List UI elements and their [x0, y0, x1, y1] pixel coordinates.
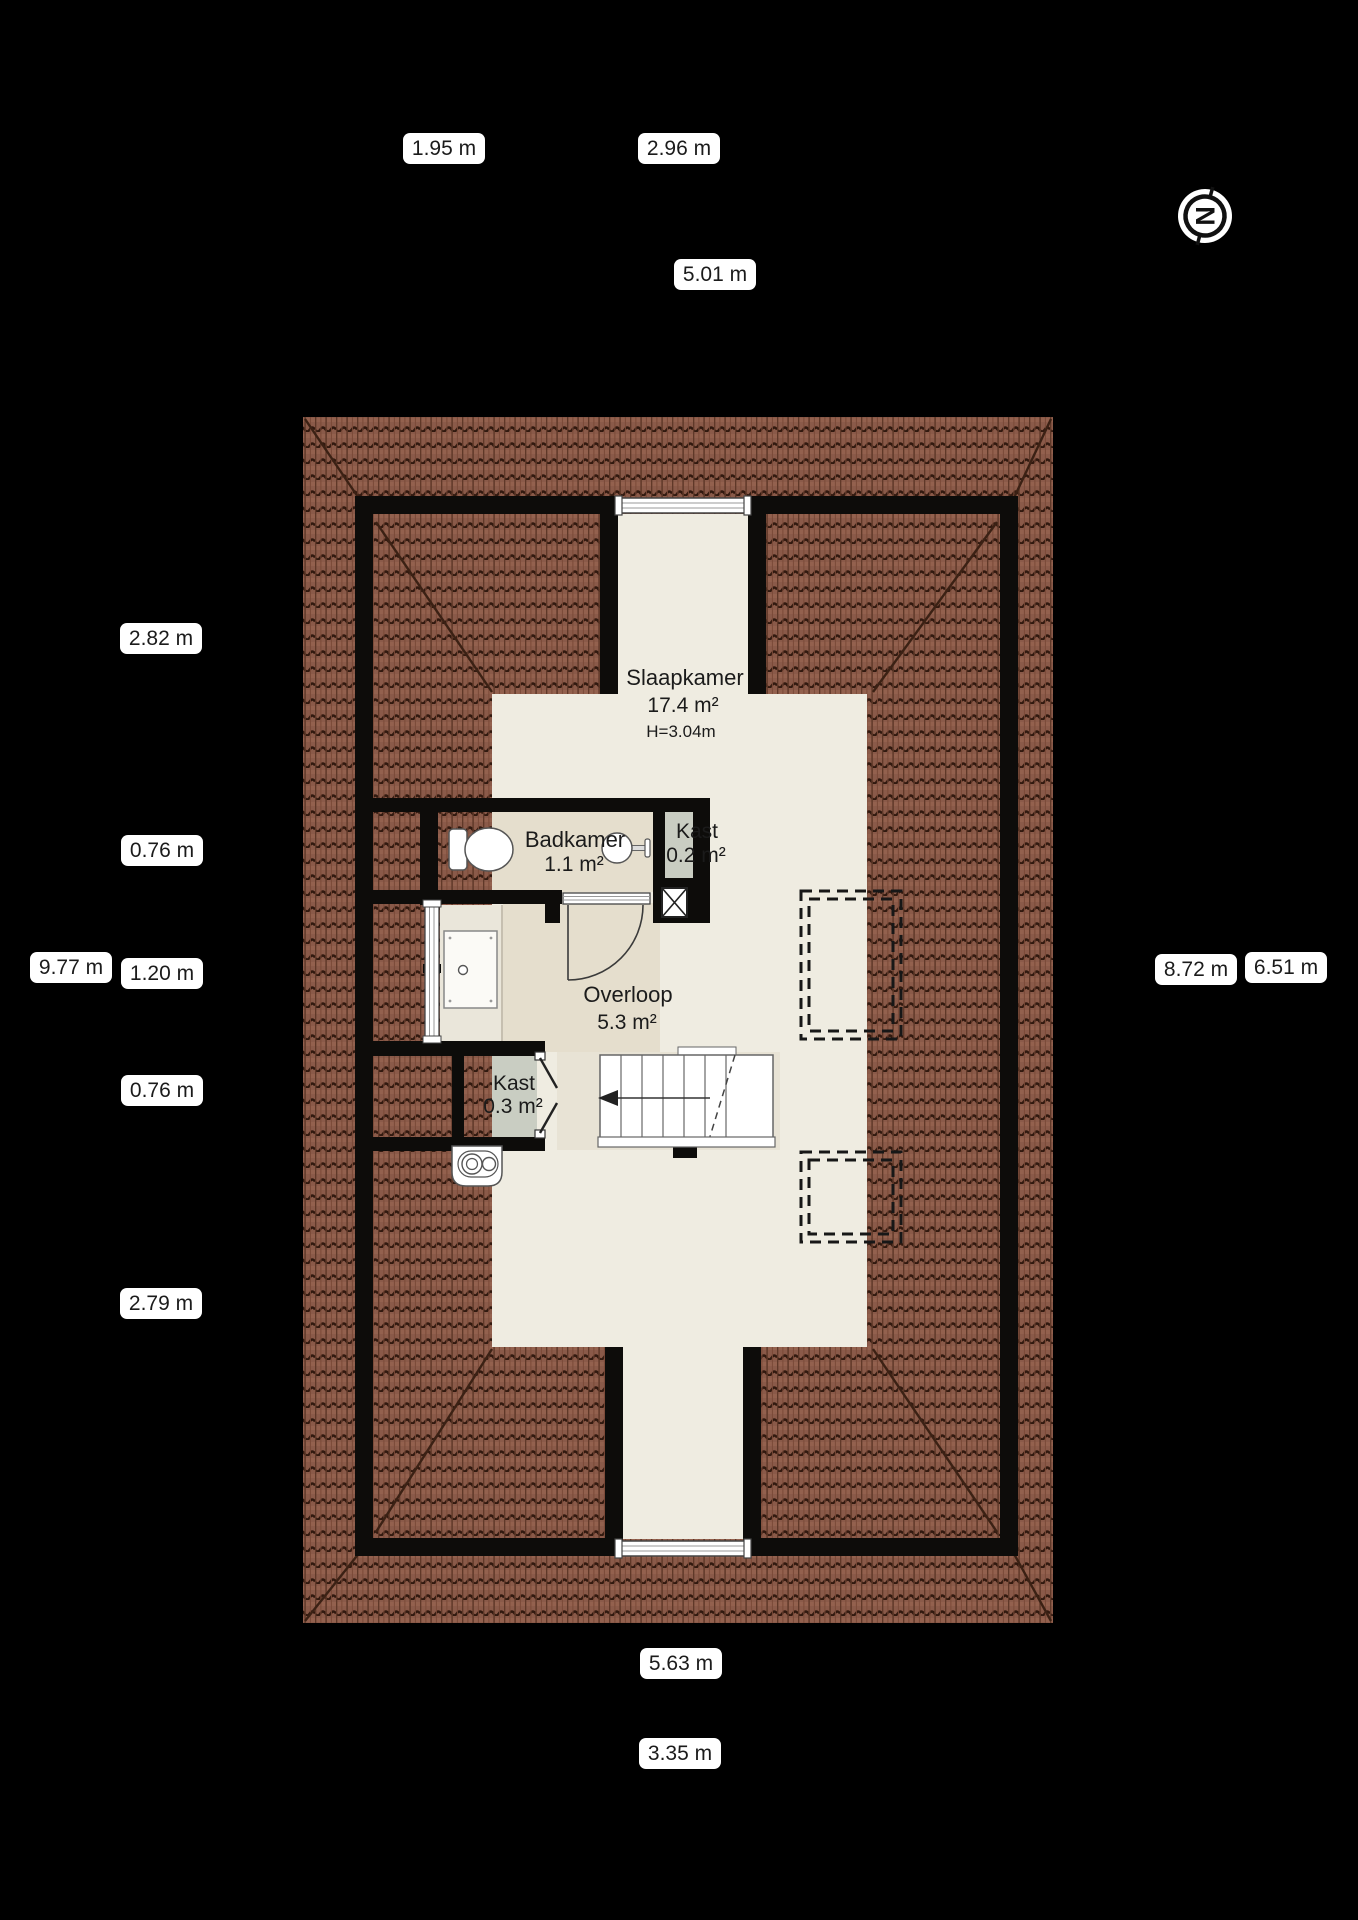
wall-top-right: [748, 496, 1018, 514]
floorplan-canvas: Slaapkamer 17.4 m² H=3.04m Badkamer 1.1 …: [0, 0, 1358, 1920]
toilet-icon: [449, 828, 513, 871]
room-label-overloop: Overloop: [583, 982, 672, 1007]
floorplan-page: Slaapkamer 17.4 m² H=3.04m Badkamer 1.1 …: [0, 0, 1358, 1920]
wall-kast-groot-divider: [452, 1052, 464, 1137]
dim-label-bottom-total: 5.63 m: [640, 1648, 722, 1679]
wall-top-left: [355, 496, 618, 514]
svg-text:5.01 m: 5.01 m: [683, 263, 747, 286]
window-top: [615, 496, 751, 515]
staircase: [598, 1047, 775, 1147]
svg-text:2.96 m: 2.96 m: [647, 137, 711, 160]
wall-stub-bottom-bay-right: [743, 1347, 761, 1539]
room-area-slaapkamer: 17.4 m²: [647, 694, 718, 717]
room-area-overloop: 5.3 m²: [597, 1011, 657, 1034]
window-west: [423, 900, 441, 1043]
svg-text:1.20 m: 1.20 m: [130, 962, 194, 985]
compass: N: [1171, 180, 1239, 252]
wall-right: [1000, 496, 1018, 1556]
boiler-icon: [452, 1146, 502, 1186]
wall-badkamer-west: [420, 798, 438, 905]
room-height-slaapkamer: H=3.04m: [646, 722, 715, 741]
svg-text:2.79 m: 2.79 m: [129, 1292, 193, 1315]
wall-badkamer-south: [373, 890, 562, 904]
wall-door-stub: [545, 898, 560, 923]
dim-label-left-4: 0.76 m: [121, 1075, 203, 1106]
shaft-icon: [662, 888, 687, 917]
svg-text:5.63 m: 5.63 m: [649, 1652, 713, 1675]
room-area-kast-klein: 0.2 m²: [666, 844, 726, 867]
room-label-slaapkamer: Slaapkamer: [626, 665, 743, 690]
svg-text:6.51 m: 6.51 m: [1254, 956, 1318, 979]
compass-north-letter: N: [1190, 206, 1220, 226]
dim-label-bottom-inner: 3.35 m: [639, 1738, 721, 1769]
dim-label-left-2: 0.76 m: [121, 835, 203, 866]
window-bottom: [615, 1539, 751, 1558]
room-area-kast-groot: 0.3 m²: [483, 1095, 543, 1118]
wall-stub-top-bay-left: [600, 514, 618, 694]
wall-stub-top-bay-right: [748, 514, 766, 694]
wall-left: [355, 496, 373, 1556]
dim-label-left-5: 2.79 m: [120, 1288, 202, 1319]
wall-bottom-left: [355, 1538, 623, 1556]
room-label-kast-groot: Kast: [493, 1072, 535, 1095]
wall-kast-east: [693, 798, 710, 888]
svg-text:9.77 m: 9.77 m: [39, 956, 103, 979]
wall-bottom-right: [743, 1538, 1018, 1556]
floor-kast-klein: [663, 808, 693, 878]
wall-stub-bottom-bay-left: [605, 1347, 623, 1539]
room-label-badkamer: Badkamer: [525, 827, 625, 852]
svg-text:0.76 m: 0.76 m: [130, 1079, 194, 1102]
svg-text:8.72 m: 8.72 m: [1164, 958, 1228, 981]
svg-text:1.95 m: 1.95 m: [412, 137, 476, 160]
dim-label-left-total: 9.77 m: [30, 952, 112, 983]
dim-label-top-total: 5.01 m: [674, 259, 756, 290]
svg-text:3.35 m: 3.35 m: [648, 1742, 712, 1765]
wall-badkamer-kast: [653, 798, 665, 892]
dim-label-top-right: 2.96 m: [638, 133, 720, 164]
dim-label-right-total: 8.72 m: [1155, 954, 1237, 985]
dim-label-right-inner: 6.51 m: [1245, 952, 1327, 983]
dim-label-top-left: 1.95 m: [403, 133, 485, 164]
room-label-kast-klein: Kast: [676, 820, 718, 843]
room-area-badkamer: 1.1 m²: [544, 853, 604, 876]
dim-label-left-1: 2.82 m: [120, 623, 202, 654]
svg-text:0.76 m: 0.76 m: [130, 839, 194, 862]
svg-text:2.82 m: 2.82 m: [129, 627, 193, 650]
dim-label-left-3: 1.20 m: [121, 958, 203, 989]
